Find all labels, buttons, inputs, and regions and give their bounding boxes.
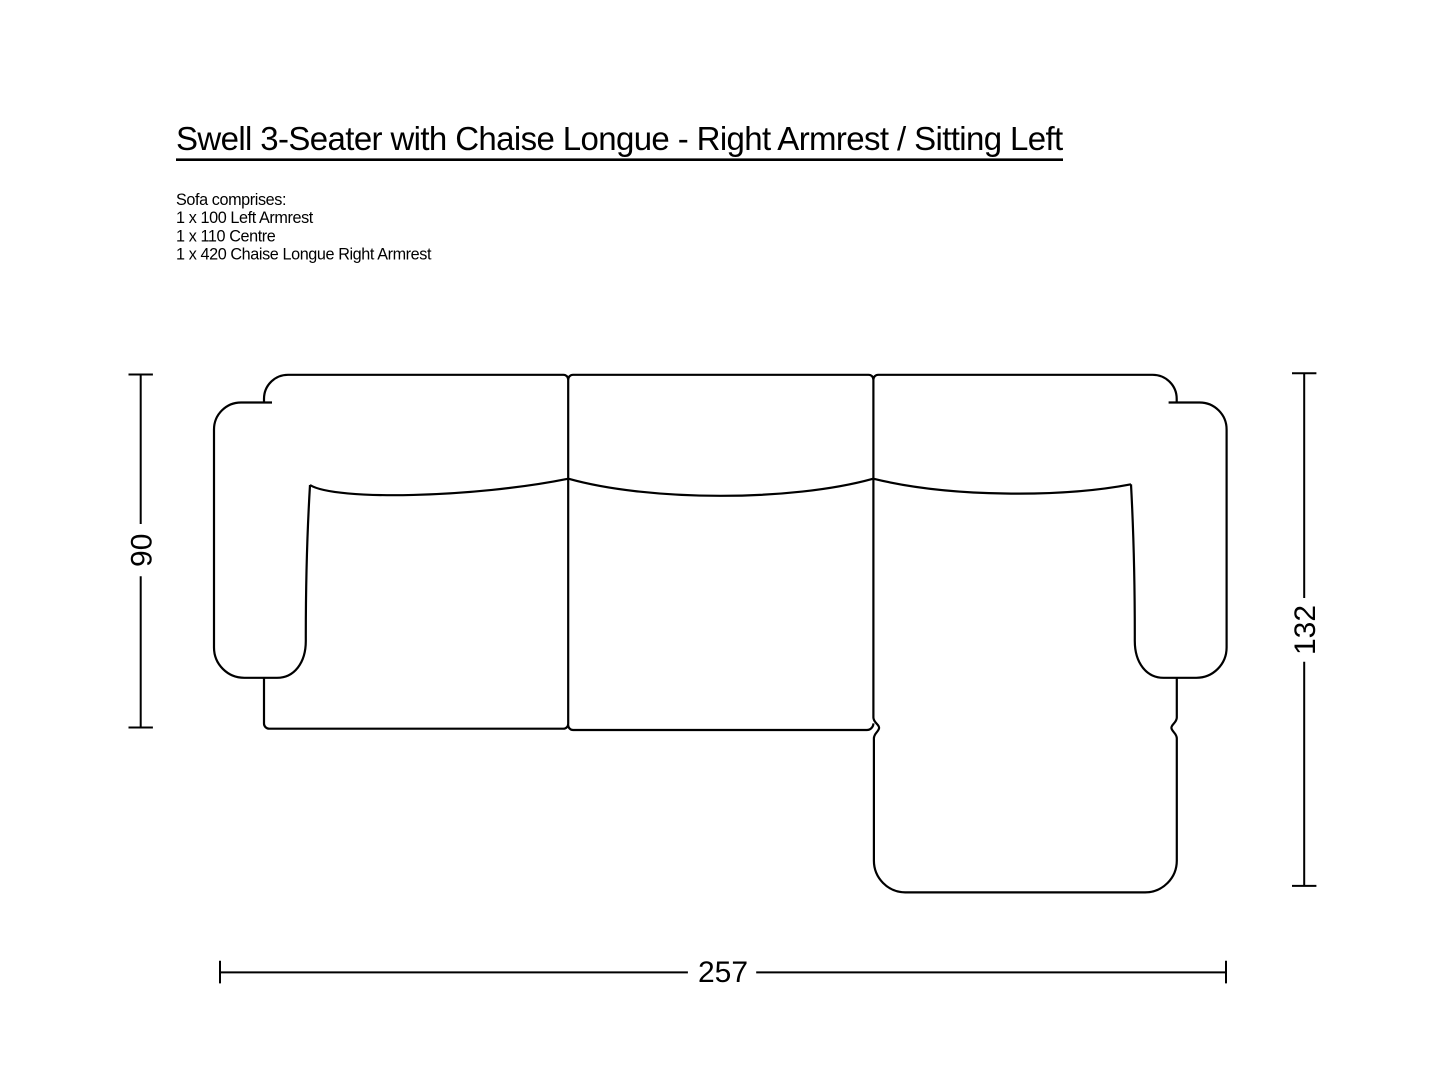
svg-text:1 x 420 Chaise Longue Right Ar: 1 x 420 Chaise Longue Right Armrest [176, 245, 432, 263]
svg-text:Swell 3-Seater with Chaise Lon: Swell 3-Seater with Chaise Longue - Righ… [176, 120, 1063, 157]
svg-text:257: 257 [698, 956, 748, 989]
svg-text:1 x 110 Centre: 1 x 110 Centre [176, 227, 276, 245]
svg-text:1 x 100 Left Armrest: 1 x 100 Left Armrest [176, 209, 314, 227]
svg-text:Sofa comprises:: Sofa comprises: [176, 191, 286, 209]
svg-text:90: 90 [126, 534, 159, 567]
svg-text:132: 132 [1289, 605, 1322, 655]
